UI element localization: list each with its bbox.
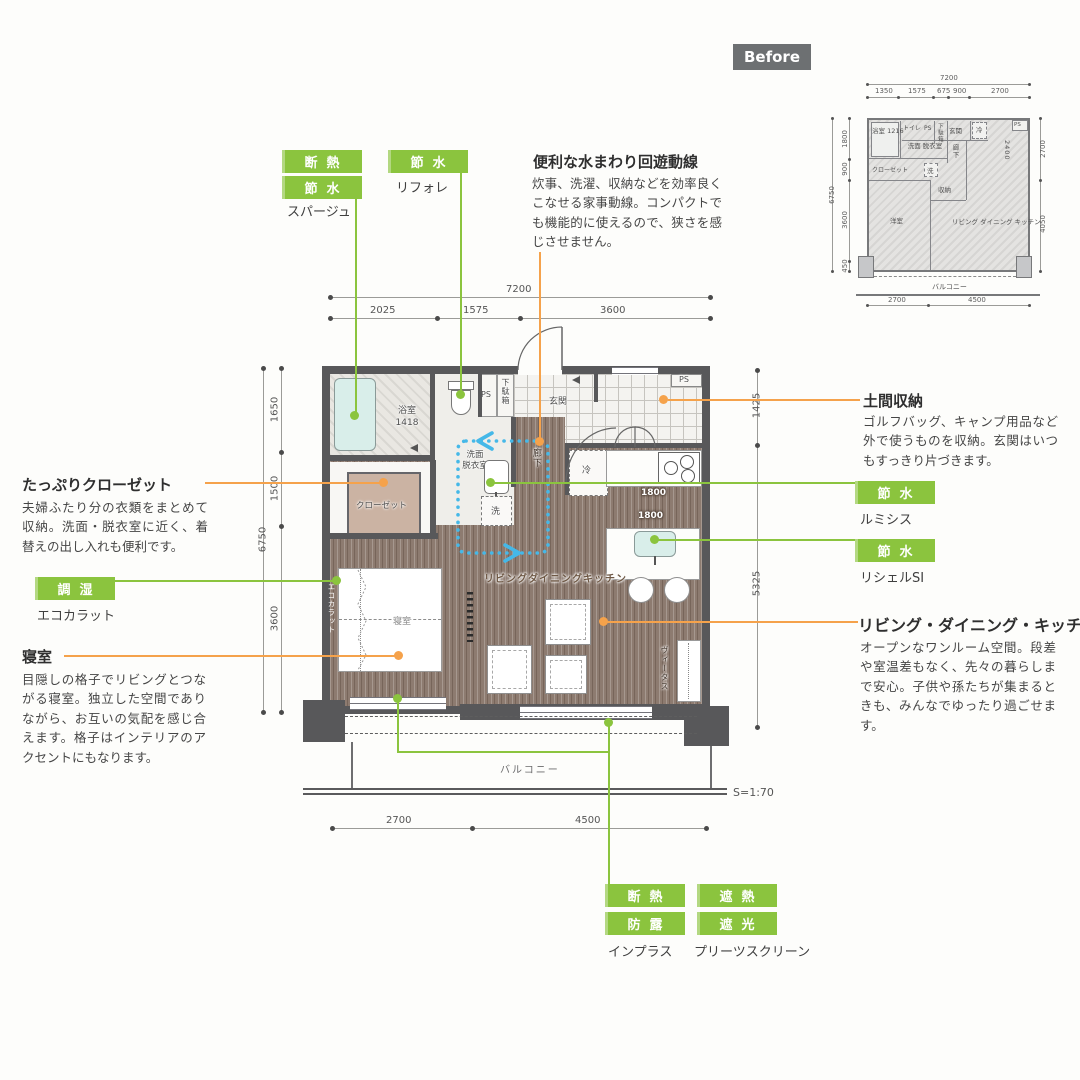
body-bedroom: 目隠しの格子でリビングとつながる寝室。独立した空間でありながら、お互いの気配を感… [22,670,206,767]
dim-line [330,297,710,298]
dim-top-2: 3600 [600,305,625,316]
leader-dot [659,395,668,404]
dim-line [281,368,282,712]
badge-dannetsu: 断熱 [605,884,685,907]
bdim-bottom-1: 4500 [968,296,986,304]
bdim-left-0: 1800 [841,124,849,154]
scale-label: S=1:70 [733,786,774,799]
before-label-ldk: リビング ダイニング キッチン [952,218,1012,226]
leader-dot [486,478,495,487]
leader-dot [456,390,465,399]
dim-left-2: 3600 [270,599,281,639]
leader-window-a [397,698,399,753]
product-sparge: スパージュ [287,201,351,220]
dim-right-0: 1425 [752,386,763,426]
leader-richelle [658,539,855,541]
product-richelle: リシェルSI [860,567,924,586]
leader-dot [350,411,359,420]
product-inplus: インプラス [608,941,672,960]
leader-doma [668,399,860,401]
leader-ldk [607,621,858,623]
title-bedroom: 寝室 [22,646,52,667]
dim-top-1: 1575 [463,305,488,316]
bdim-right-1: 4050 [1039,209,1047,239]
leader-bedroom [64,655,400,657]
plan-linework [300,300,770,770]
bdim-top-total: 7200 [940,74,958,82]
before-balcony-slab [856,294,1040,296]
dim-bottom-0: 2700 [386,815,411,826]
dim-top-0: 2025 [370,305,395,316]
before-column-right [1016,256,1032,278]
dim-top-total: 7200 [506,284,531,295]
bdim-left-2: 3600 [841,205,849,235]
balcony-slab [303,788,727,795]
bdim-bottom-0: 2700 [888,296,906,304]
title-doma: 土間収納 [863,390,923,411]
before-label-fridge: 冷 [976,126,983,134]
leader-dot [604,718,613,727]
dim-left-1: 1500 [270,469,281,509]
dim-bottom-1: 4500 [575,815,600,826]
body-doma: ゴルフバッグ、キャンプ用品など外で使うものを収納。玄関はいつもすっきり片づきます… [863,412,1058,470]
before-label-genkan: 玄関 [949,127,962,135]
leader-lumisis [494,482,855,484]
before-label-balcony: バルコニー [932,283,967,292]
bdim-top-0: 1350 [875,87,893,95]
product-refore: リフォレ [396,177,448,196]
badge-sessui: 節水 [855,539,935,562]
badge-shanetsu: 遮熱 [697,884,777,907]
leader-closet [205,482,385,484]
product-pleats: プリーツスクリーン [694,941,810,960]
badge-sessui: 節水 [855,481,935,504]
dim-left-0: 1650 [270,390,281,430]
bdim-left-3: 450 [841,251,849,281]
before-column-left [858,256,874,278]
product-ecocarat: エコカラット [37,605,115,624]
leader-sparge [355,197,357,416]
before-badge: Before [733,44,811,70]
before-label-wash: 洗 [927,167,934,175]
dim-line [332,828,706,829]
badge-choshitsu: 調湿 [35,577,115,600]
before-label-ps2: PS [1014,122,1021,129]
badge-sessui: 節水 [282,176,362,199]
title-circulation: 便利な水まわり回遊動線 [533,151,698,172]
bdim-top-2: 675 [937,87,950,95]
badge-sessui: 節水 [388,150,468,173]
bdim-top-1: 1575 [908,87,926,95]
leader-refore [460,172,462,394]
title-ldk: リビング・ダイニング・キッチン [858,612,1080,636]
body-closet: 夫婦ふたり分の衣類をまとめて収納。洗面・脱衣室に近く、着替えの出し入れも便利です… [22,498,208,556]
leader-dot [379,478,388,487]
before-label-ps: PS [924,125,931,133]
badge-shako: 遮光 [697,912,777,935]
leader-eco [115,580,337,582]
before-label-bath: 浴室 1216 [872,127,899,135]
leader-dot [393,694,402,703]
body-ldk: オープンなワンルーム空間。段差や室温差もなく、先々の暮らしまで安心。子供や孫たち… [860,638,1056,735]
dim-right-1: 5325 [752,564,763,604]
before-label-2400: 2400 [1003,140,1011,162]
before-label-yoshitsu: 洋室 [890,217,903,225]
leader-dot [599,617,608,626]
bdim-top-3: 900 [953,87,966,95]
before-balcony-dash [874,276,1016,277]
bdim-right-0: 2700 [1039,134,1047,164]
body-circulation: 炊事、洗濯、収納などを効率良くこなせる家事動線。コンパクトでも機能的に使えるので… [532,174,722,252]
before-label-toilet: トイレ [903,125,921,133]
leader-dot [394,651,403,660]
before-label-senmen: 洗面 脱衣室 [906,142,944,150]
dim-left-total: 6750 [258,520,269,560]
bdim-left-total: 6750 [828,180,836,210]
bdim-top-4: 2700 [991,87,1009,95]
leader-window-c [608,722,610,884]
brochure-page: PS 浴室 1418 トイレ PS 下駄箱 玄関 洗面 脱衣室 洗 廊下 クロー… [0,0,1080,1080]
leader-dot [535,437,544,446]
leader-window-b [397,751,610,753]
before-label-hall: 廊下 [951,144,959,162]
product-lumisis: ルミシス [860,509,912,528]
leader-dot [650,535,659,544]
badge-boro: 防露 [605,912,685,935]
before-label-closet: クローゼット [872,167,908,175]
title-closet: たっぷりクローゼット [22,474,172,495]
before-label-shuno: 収納 [938,186,951,194]
badge-dannetsu: 断熱 [282,150,362,173]
leader-dot [332,576,341,585]
leader-circulation [539,252,541,442]
